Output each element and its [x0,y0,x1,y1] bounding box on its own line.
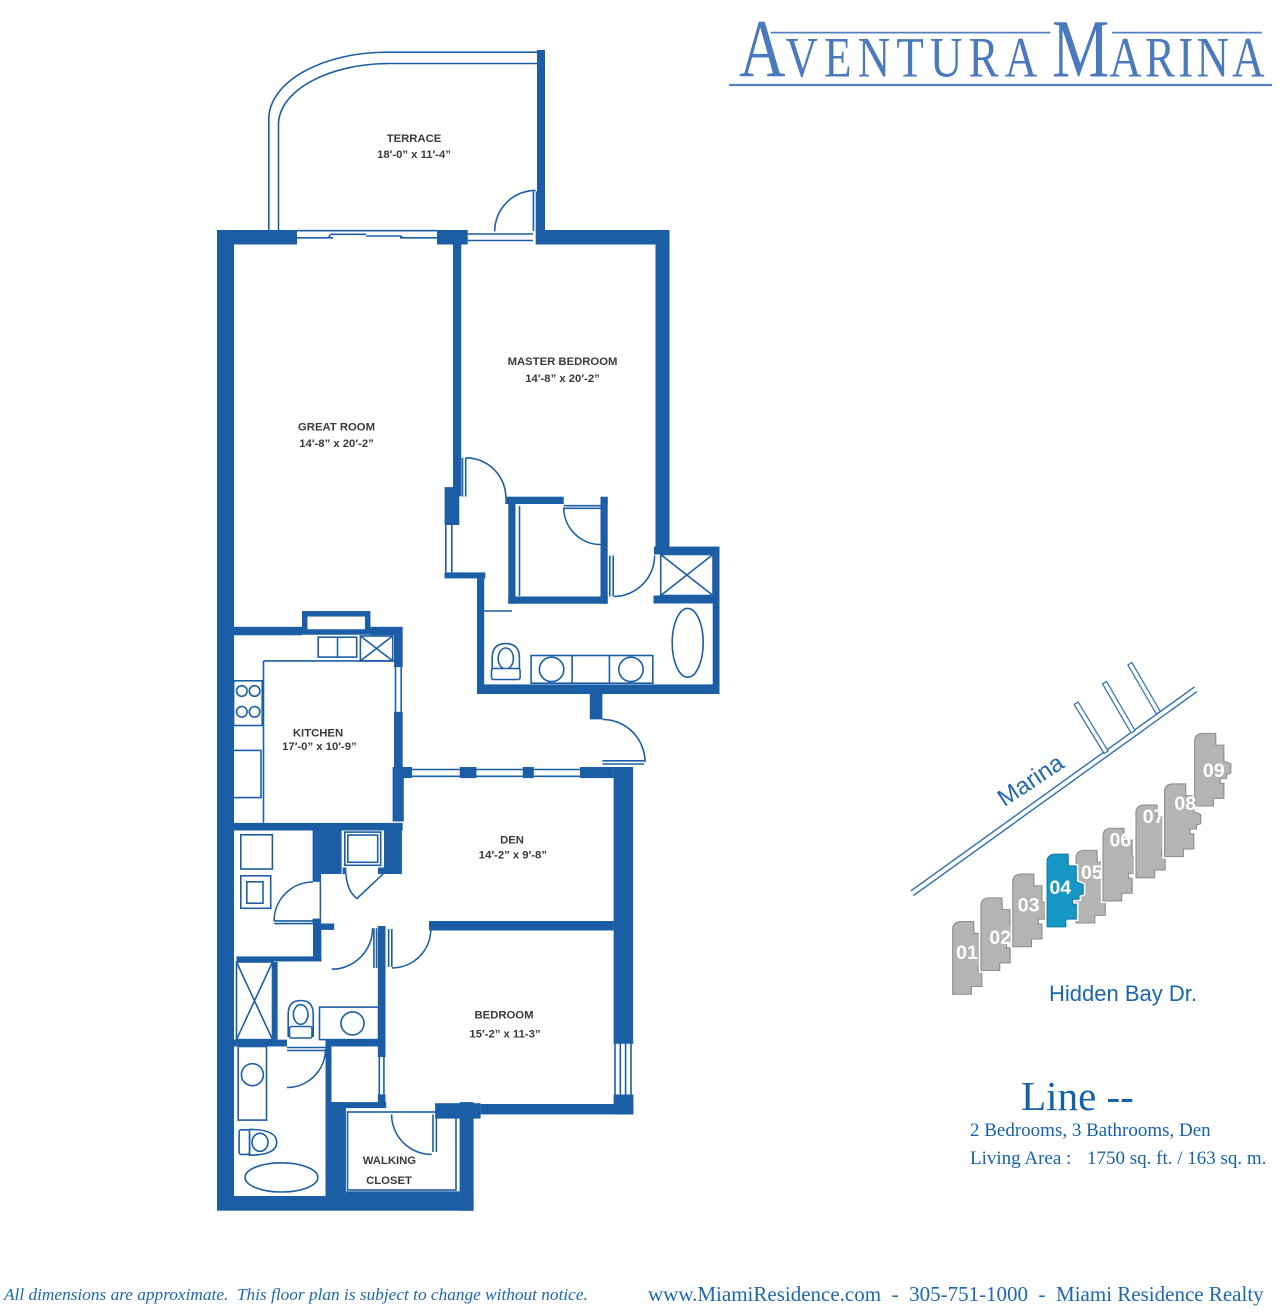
svg-text:14′-8” x 20′-2”: 14′-8” x 20′-2” [525,373,600,385]
svg-text:14′-8” x 20′-2”: 14′-8” x 20′-2” [299,438,374,450]
svg-text:06: 06 [1110,830,1132,852]
svg-text:2 Bedrooms, 3 Bathrooms, Den: 2 Bedrooms, 3 Bathrooms, Den [970,1120,1211,1141]
svg-text:Living Area :: Living Area : [970,1148,1071,1169]
svg-text:All dimensions are approximate: All dimensions are approximate. This flo… [3,1285,588,1304]
svg-text:04: 04 [1049,877,1071,899]
svg-text:Line --: Line -- [1021,1073,1134,1119]
svg-text:Marina: Marina [993,749,1070,812]
svg-text:05: 05 [1081,862,1103,884]
svg-text:03: 03 [1018,895,1040,917]
svg-text:15′-2” x 11-3”: 15′-2” x 11-3” [469,1029,540,1041]
svg-text:MASTER BEDROOM: MASTER BEDROOM [508,356,618,368]
svg-text:01: 01 [956,942,978,964]
svg-text:MARINA: MARINA [1052,3,1268,94]
svg-text:WALKING: WALKING [363,1155,417,1167]
svg-text:08: 08 [1174,793,1196,815]
svg-text:DEN: DEN [500,835,524,847]
svg-text:AVENTURA: AVENTURA [739,3,1043,94]
svg-text:BEDROOM: BEDROOM [475,1010,534,1022]
svg-text:GREAT ROOM: GREAT ROOM [298,422,375,434]
svg-text:1750 sq. ft. / 163 sq. m.: 1750 sq. ft. / 163 sq. m. [1087,1148,1266,1169]
svg-text:14′-2” x 9′-8”: 14′-2” x 9′-8” [479,850,547,862]
svg-text:18′-0” x 11′-4”: 18′-0” x 11′-4” [377,149,451,161]
svg-text:TERRACE: TERRACE [387,133,442,145]
svg-text:07: 07 [1143,806,1165,828]
svg-text:17′-0” x 10′-9”: 17′-0” x 10′-9” [282,741,357,753]
svg-text:CLOSET: CLOSET [366,1175,412,1187]
svg-text:KITCHEN: KITCHEN [293,728,343,740]
svg-text:www.MiamiResidence.com - 305: www.MiamiResidence.com - 305-751-1000 - … [648,1282,1264,1306]
svg-text:09: 09 [1203,760,1225,782]
svg-text:Hidden Bay Dr.: Hidden Bay Dr. [1049,981,1197,1006]
svg-text:02: 02 [989,927,1011,949]
